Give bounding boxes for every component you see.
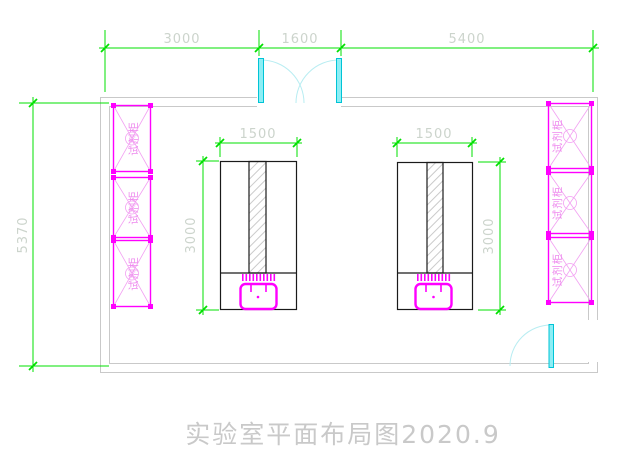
- reagent-cabinet-right-2: 试剂柜: [546, 170, 594, 236]
- door-leaf-right: [337, 59, 342, 103]
- cabinet-label: 试剂柜: [551, 253, 564, 288]
- bench-width-label: 1500: [415, 127, 452, 142]
- door-opening-top-mask: [257, 91, 341, 109]
- cabinet-corner: [546, 235, 551, 240]
- lab-bench-right-dimensions: 1500 3000: [392, 127, 506, 315]
- cabinet-label: 试剂柜: [127, 190, 140, 225]
- bench-width-label: 1500: [239, 127, 276, 142]
- cabinet-corner: [111, 238, 116, 243]
- reagent-cabinet-left-2: 试剂柜: [111, 175, 153, 240]
- cabinet-corner: [589, 170, 594, 175]
- top-dimension-chain: 3000 1600 5400: [99, 30, 599, 92]
- dimension-label-1600: 1600: [281, 32, 318, 47]
- cad-drawing: 3000 1600 5400 5370 1500 3000: [0, 0, 619, 469]
- single-door-bottom-right: [510, 325, 554, 368]
- cabinet-corner: [589, 300, 594, 305]
- cabinet-corner: [148, 304, 153, 309]
- cabinet-label: 试剂柜: [551, 186, 564, 221]
- cabinet-corner: [148, 175, 153, 180]
- dimension-label-5400: 5400: [448, 32, 485, 47]
- cabinet-label: 试剂柜: [551, 119, 564, 154]
- lab-bench-left-dimensions: 1500 3000: [184, 127, 302, 315]
- left-dimension: 5370: [16, 97, 109, 372]
- reagent-cabinet-left-3: 试剂柜: [111, 238, 153, 309]
- lab-bench-right: [398, 163, 473, 310]
- cabinet-corner: [111, 175, 116, 180]
- cabinet-corner: [546, 101, 551, 106]
- door-opening-right-mask: [583, 320, 601, 362]
- cabinet-corner: [148, 103, 153, 108]
- cabinet-corner: [148, 169, 153, 174]
- cabinet-corner: [111, 304, 116, 309]
- sink-drain: [432, 296, 435, 299]
- room-walls: [101, 91, 602, 373]
- floorplan-canvas: 3000 1600 5400 5370 1500 3000: [0, 0, 619, 469]
- cabinet-label: 试剂柜: [127, 256, 140, 291]
- reagent-cabinet-right-3: 试剂柜: [546, 235, 594, 305]
- lab-bench-left: [221, 162, 297, 310]
- dimension-label-3000: 3000: [163, 32, 200, 47]
- reagent-cabinet-left-1: 试剂柜: [111, 103, 153, 174]
- cabinet-corner: [546, 300, 551, 305]
- drawing-title: 实验室平面布局图2020.9: [185, 420, 500, 449]
- cabinet-corner: [546, 170, 551, 175]
- reagent-cabinet-right-1: 试剂柜: [546, 101, 594, 171]
- cabinet-corner: [111, 103, 116, 108]
- cabinet-corner: [148, 238, 153, 243]
- bench-hatch-strip: [249, 162, 266, 274]
- door-swing-arc: [510, 325, 551, 366]
- cabinet-label: 试剂柜: [127, 121, 140, 156]
- room-inner-wall: [110, 107, 589, 364]
- room-outer-wall: [101, 98, 598, 373]
- bench-height-label: 3000: [482, 217, 497, 254]
- cabinet-corner: [589, 101, 594, 106]
- bench-hatch-strip: [427, 163, 443, 274]
- door-leaf-left: [259, 59, 264, 103]
- door-leaf: [549, 325, 554, 368]
- cabinet-corner: [111, 169, 116, 174]
- cabinet-corner: [589, 235, 594, 240]
- dimension-label-5370: 5370: [16, 216, 31, 253]
- sink-drain: [257, 296, 260, 299]
- bench-height-label: 3000: [184, 216, 199, 253]
